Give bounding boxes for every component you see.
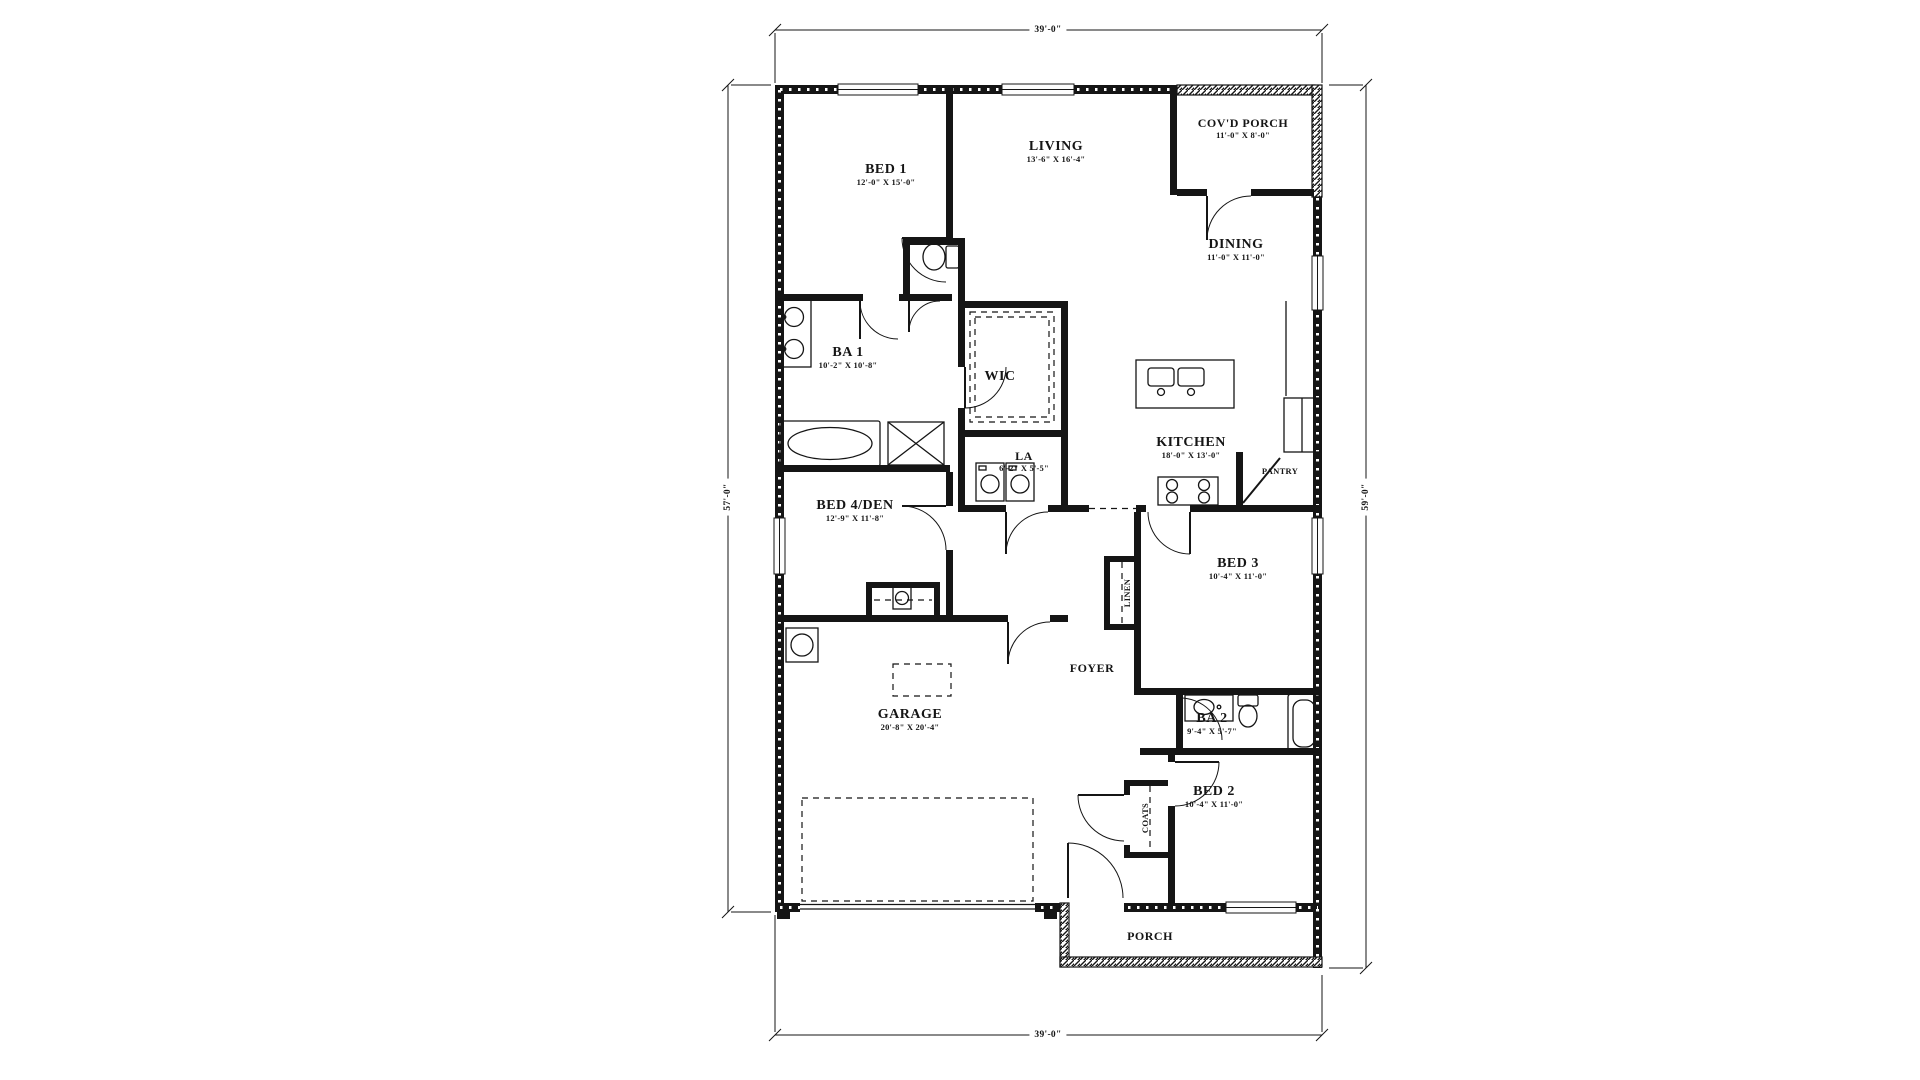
dim-left: 57'-0" [723, 478, 733, 515]
range-fixture [1158, 477, 1218, 505]
dimension-lines [722, 24, 1372, 1041]
dashed-outlines [802, 312, 1150, 901]
exterior-walls [775, 85, 1322, 968]
ba1-tub-fixture [780, 421, 880, 466]
interior-walls [775, 85, 1322, 905]
ba1-shower-fixture [888, 422, 944, 465]
dim-bottom: 39'-0" [1029, 1030, 1066, 1040]
ba1-toilet-fixture [923, 244, 959, 270]
bed4-closet-fixture [893, 587, 911, 609]
garage-door [800, 901, 1035, 914]
water-heater-fixture [786, 628, 818, 662]
ba2-vanity-fixture [1185, 695, 1233, 721]
laundry-appliances [976, 463, 1034, 501]
ba2-toilet-fixture [1238, 695, 1258, 727]
dim-top: 39'-0" [1029, 25, 1066, 35]
kitchen-island-fixture [1136, 360, 1234, 408]
door-swings [860, 196, 1280, 898]
floor-plan-sheet: BED 1 12'-0" X 15'-0" LIVING 13'-6" X 16… [0, 0, 1920, 1080]
dim-right: 59'-0" [1361, 478, 1371, 515]
floor-plan-drawing [0, 0, 1920, 1080]
